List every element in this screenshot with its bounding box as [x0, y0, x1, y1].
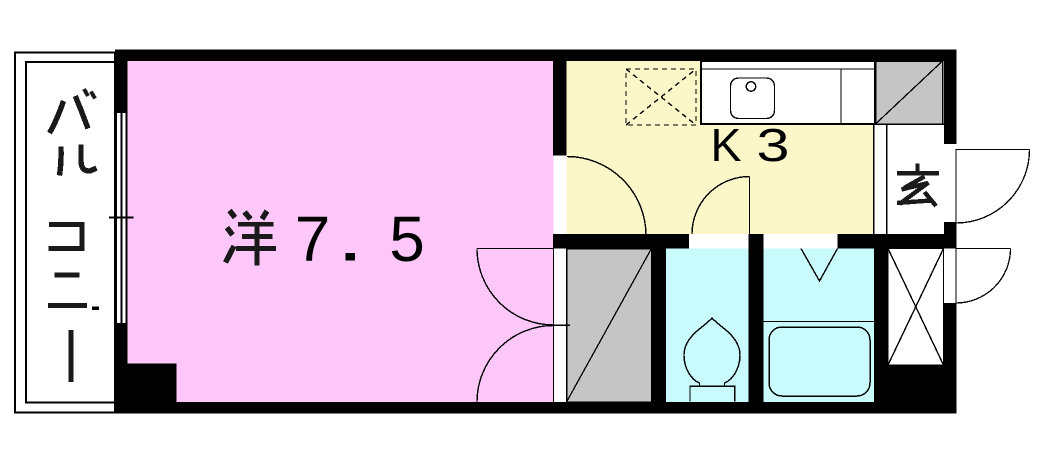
svg-text:5: 5 [389, 203, 425, 275]
svg-text:7: 7 [295, 203, 331, 275]
svg-text:3: 3 [757, 119, 790, 171]
svg-text:K: K [711, 119, 742, 171]
